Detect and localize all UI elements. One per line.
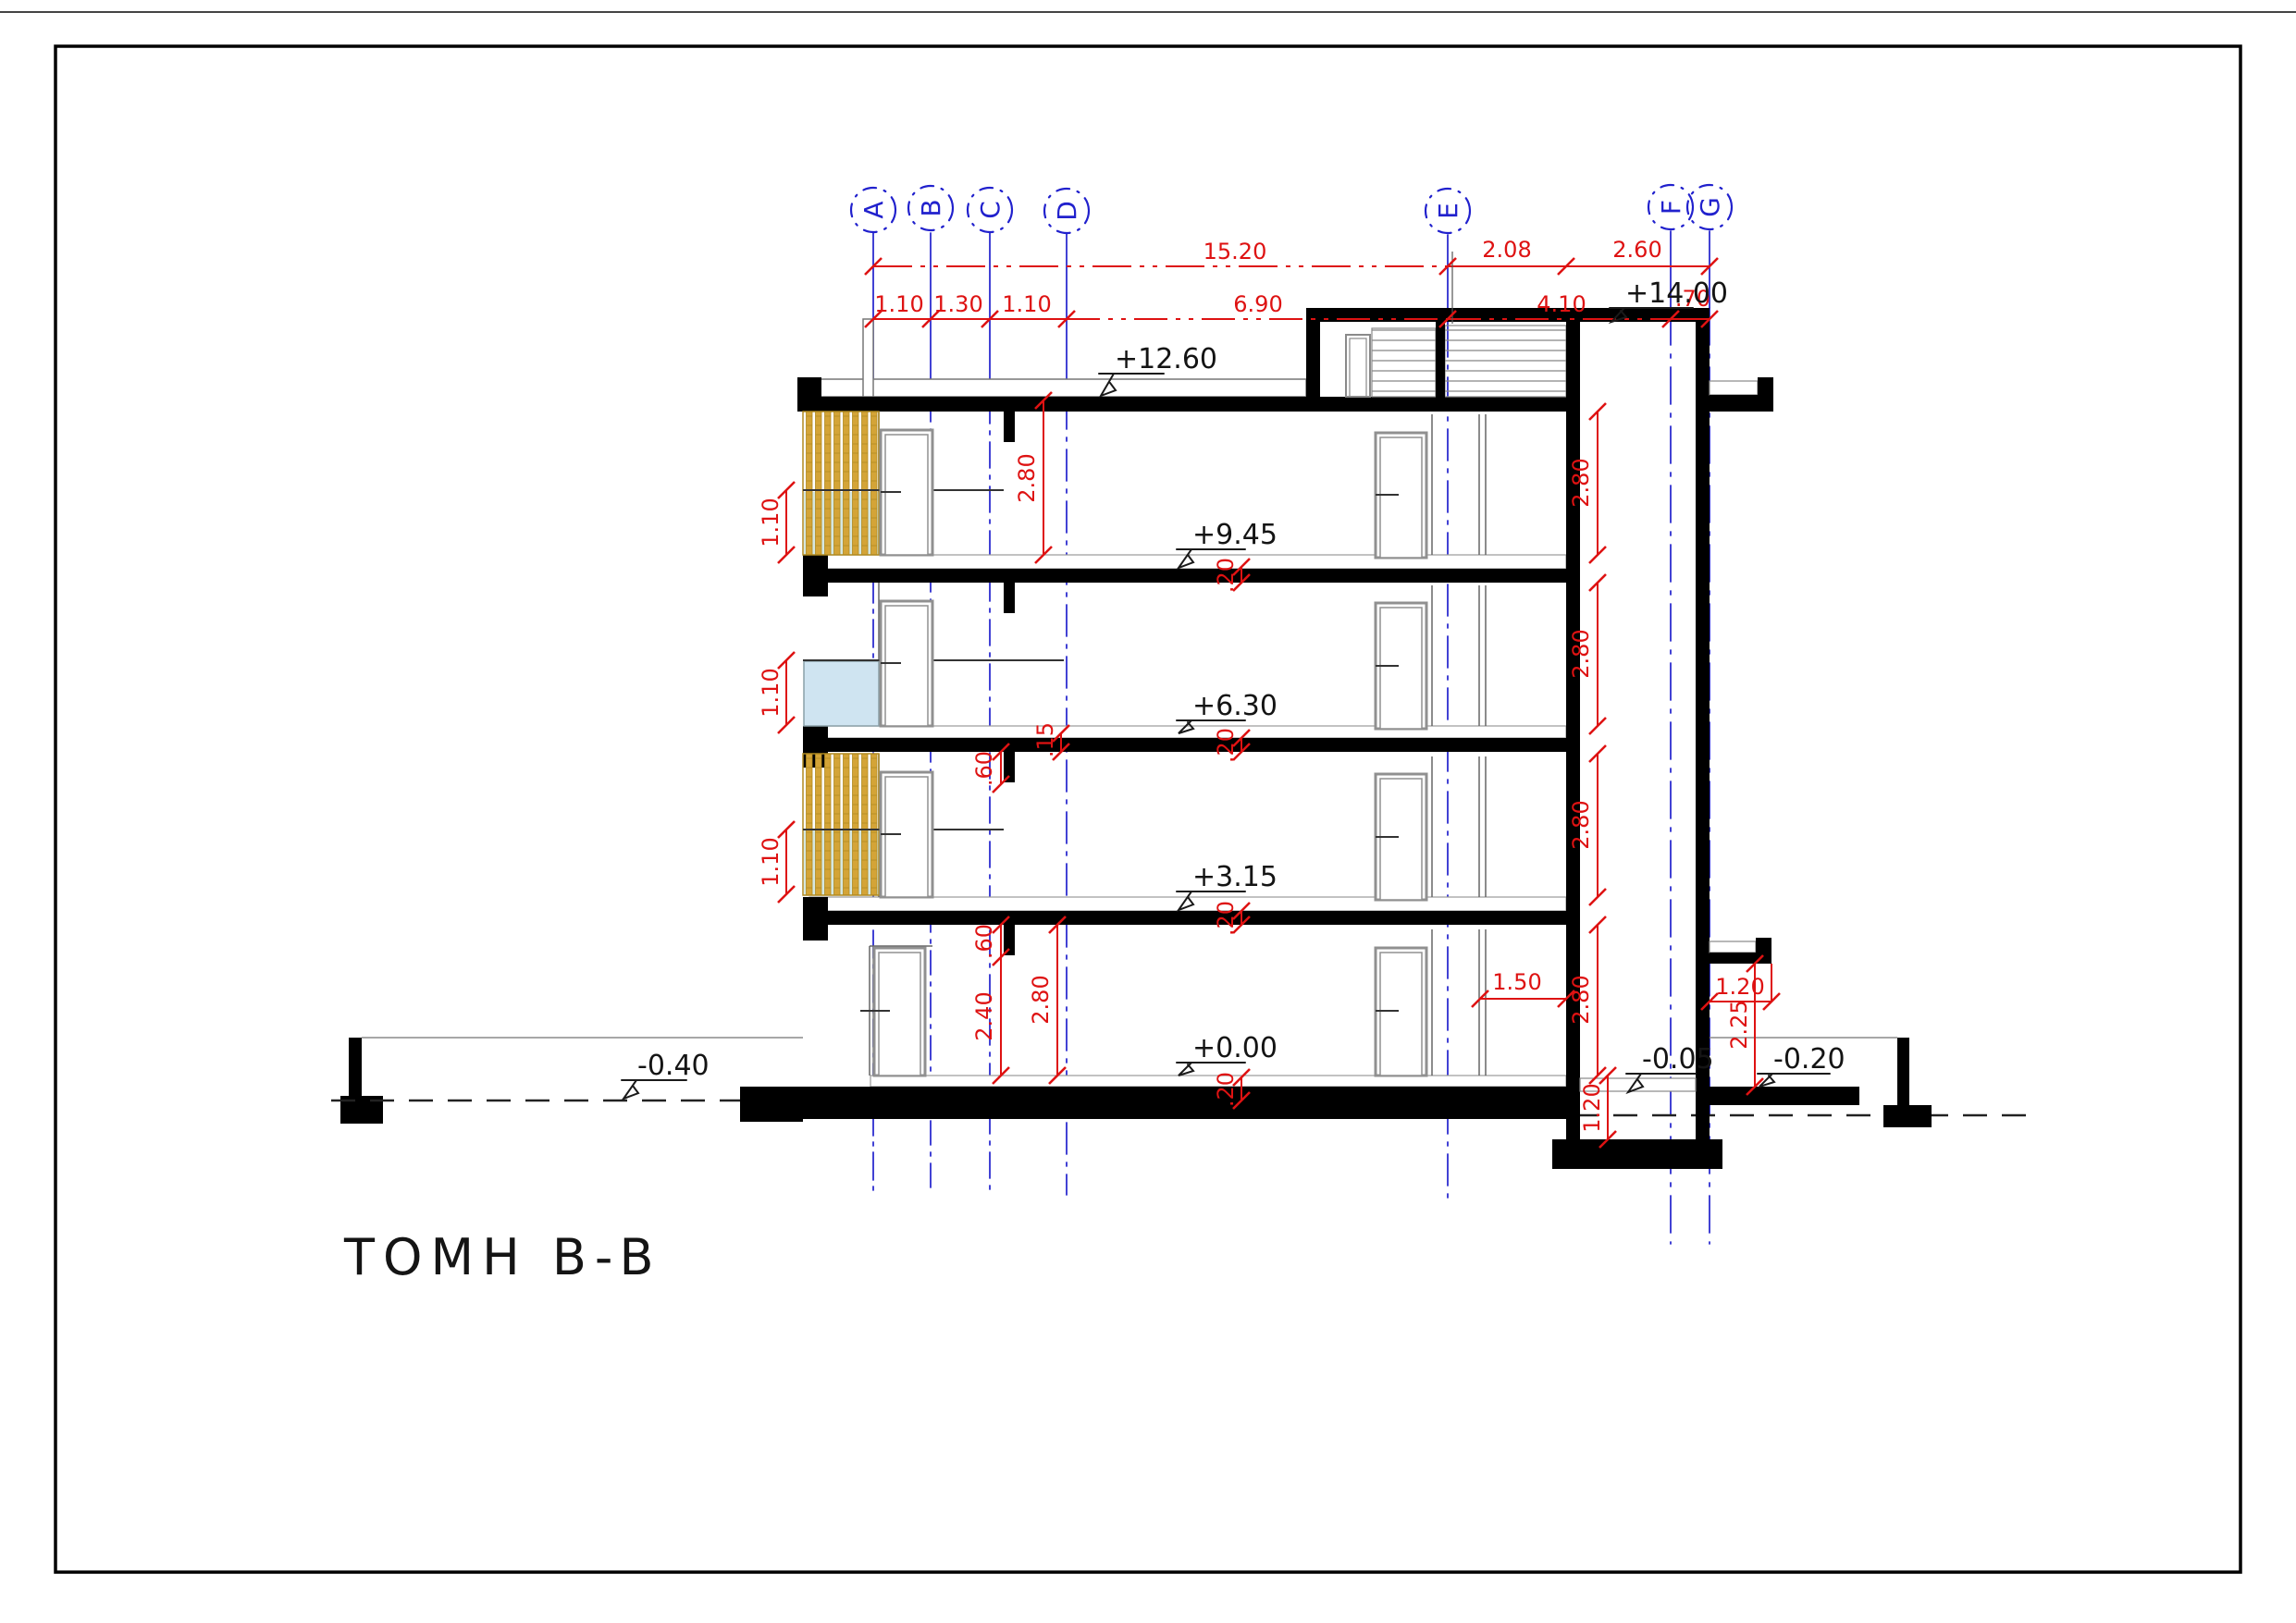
louver-screen-f1: [803, 754, 879, 895]
axis-label-g: G: [1695, 197, 1725, 217]
door: [881, 772, 932, 897]
level-f1: +3.15: [1192, 861, 1278, 893]
dim-de: 6.90: [1233, 291, 1282, 317]
axis-label-f: F: [1656, 200, 1686, 215]
stair-hatch: [1372, 328, 1436, 397]
roof-parapet-band: [809, 379, 1306, 397]
dim-shaft-ground: 2.80: [1568, 975, 1594, 1024]
ground-slab: [803, 1087, 1566, 1119]
dim-railing-f2: 1.10: [758, 668, 784, 717]
axis-label-b: B: [916, 199, 946, 216]
axis-label-d: D: [1052, 201, 1082, 221]
dim-beam-315: .60: [971, 924, 997, 959]
dim-pit-depth: 1.20: [1579, 1083, 1605, 1132]
drawing-title: ΤΟΜΗ B-B: [343, 1228, 662, 1286]
dim-railing-f1: 1.10: [758, 837, 784, 886]
roof-railing-post: [863, 319, 873, 397]
dim-under-beam: 2.40: [971, 991, 997, 1040]
architectural-section-drawing: A B C D E F G: [0, 0, 2296, 1623]
level-yard-right: -0.20: [1773, 1043, 1845, 1076]
dim-slab20-315: .20: [1213, 901, 1239, 936]
level-f2: +6.30: [1192, 690, 1278, 722]
dim-entrance: 1.50: [1492, 969, 1541, 995]
door: [1376, 948, 1426, 1076]
glass-railing-f2: [804, 661, 879, 726]
dim-ground-height: 2.80: [1028, 975, 1054, 1024]
doors: [860, 430, 1426, 1076]
dim-railing-f3: 1.10: [758, 498, 784, 547]
dim-total-width: 15.20: [1204, 239, 1267, 264]
dim-shaft-f2: 2.80: [1568, 629, 1594, 678]
dim-ef: 4.10: [1537, 291, 1586, 317]
drawing-sheet: A B C D E F G: [0, 0, 2296, 1623]
slab-315: [803, 911, 1566, 925]
dim-shaft-f3: 2.80: [1568, 458, 1594, 507]
slab-630: [803, 738, 1566, 752]
door: [1376, 433, 1426, 558]
slab-945: [803, 569, 1566, 583]
level-roof: +12.60: [1115, 343, 1217, 375]
level-ground: +0.00: [1192, 1032, 1278, 1064]
dim-slab20-roof: .20: [1213, 558, 1239, 593]
dim-slab20-630: .20: [1213, 728, 1239, 763]
door: [881, 430, 932, 555]
axis-label-e: E: [1433, 203, 1463, 219]
dim-row1-3: 2.60: [1612, 237, 1661, 263]
level-pit: -0.05: [1642, 1043, 1714, 1076]
dim-row1-2: 2.08: [1482, 237, 1531, 263]
level-roof-top: +14.00: [1625, 277, 1728, 310]
dim-bc: 1.30: [933, 291, 982, 317]
door: [1376, 774, 1426, 900]
shaft-right-wall: [1696, 322, 1710, 1139]
dim-cd: 1.10: [1002, 291, 1051, 317]
dim-ab: 1.10: [874, 291, 923, 317]
entrance-canopy: [1710, 953, 1756, 964]
dim-shaft-f1: 2.80: [1568, 800, 1594, 849]
louver-screen-f3: [803, 412, 879, 555]
level-f3: +9.45: [1192, 519, 1278, 551]
stair-hatch: [1445, 326, 1566, 397]
stair-bulkhead: [1306, 308, 1710, 410]
dim-canopy-width: 1.20: [1715, 974, 1764, 1000]
dim-beam-630: .60: [971, 751, 997, 786]
shaft-pit-slab: [1552, 1139, 1722, 1169]
sheet-border: [56, 46, 2240, 1572]
axis-label-a: A: [858, 201, 889, 218]
dim-floor-height: 2.80: [1014, 453, 1040, 502]
roof-slab: [803, 397, 1580, 412]
dim-slab20-ground: .20: [1213, 1072, 1239, 1107]
level-yard-left: -0.40: [637, 1050, 710, 1082]
dim-slab-15: .15: [1032, 722, 1058, 757]
dim-canopy-height: 2.25: [1726, 1000, 1752, 1049]
door: [1376, 603, 1426, 729]
axis-label-c: C: [975, 201, 1006, 219]
door: [881, 601, 932, 726]
